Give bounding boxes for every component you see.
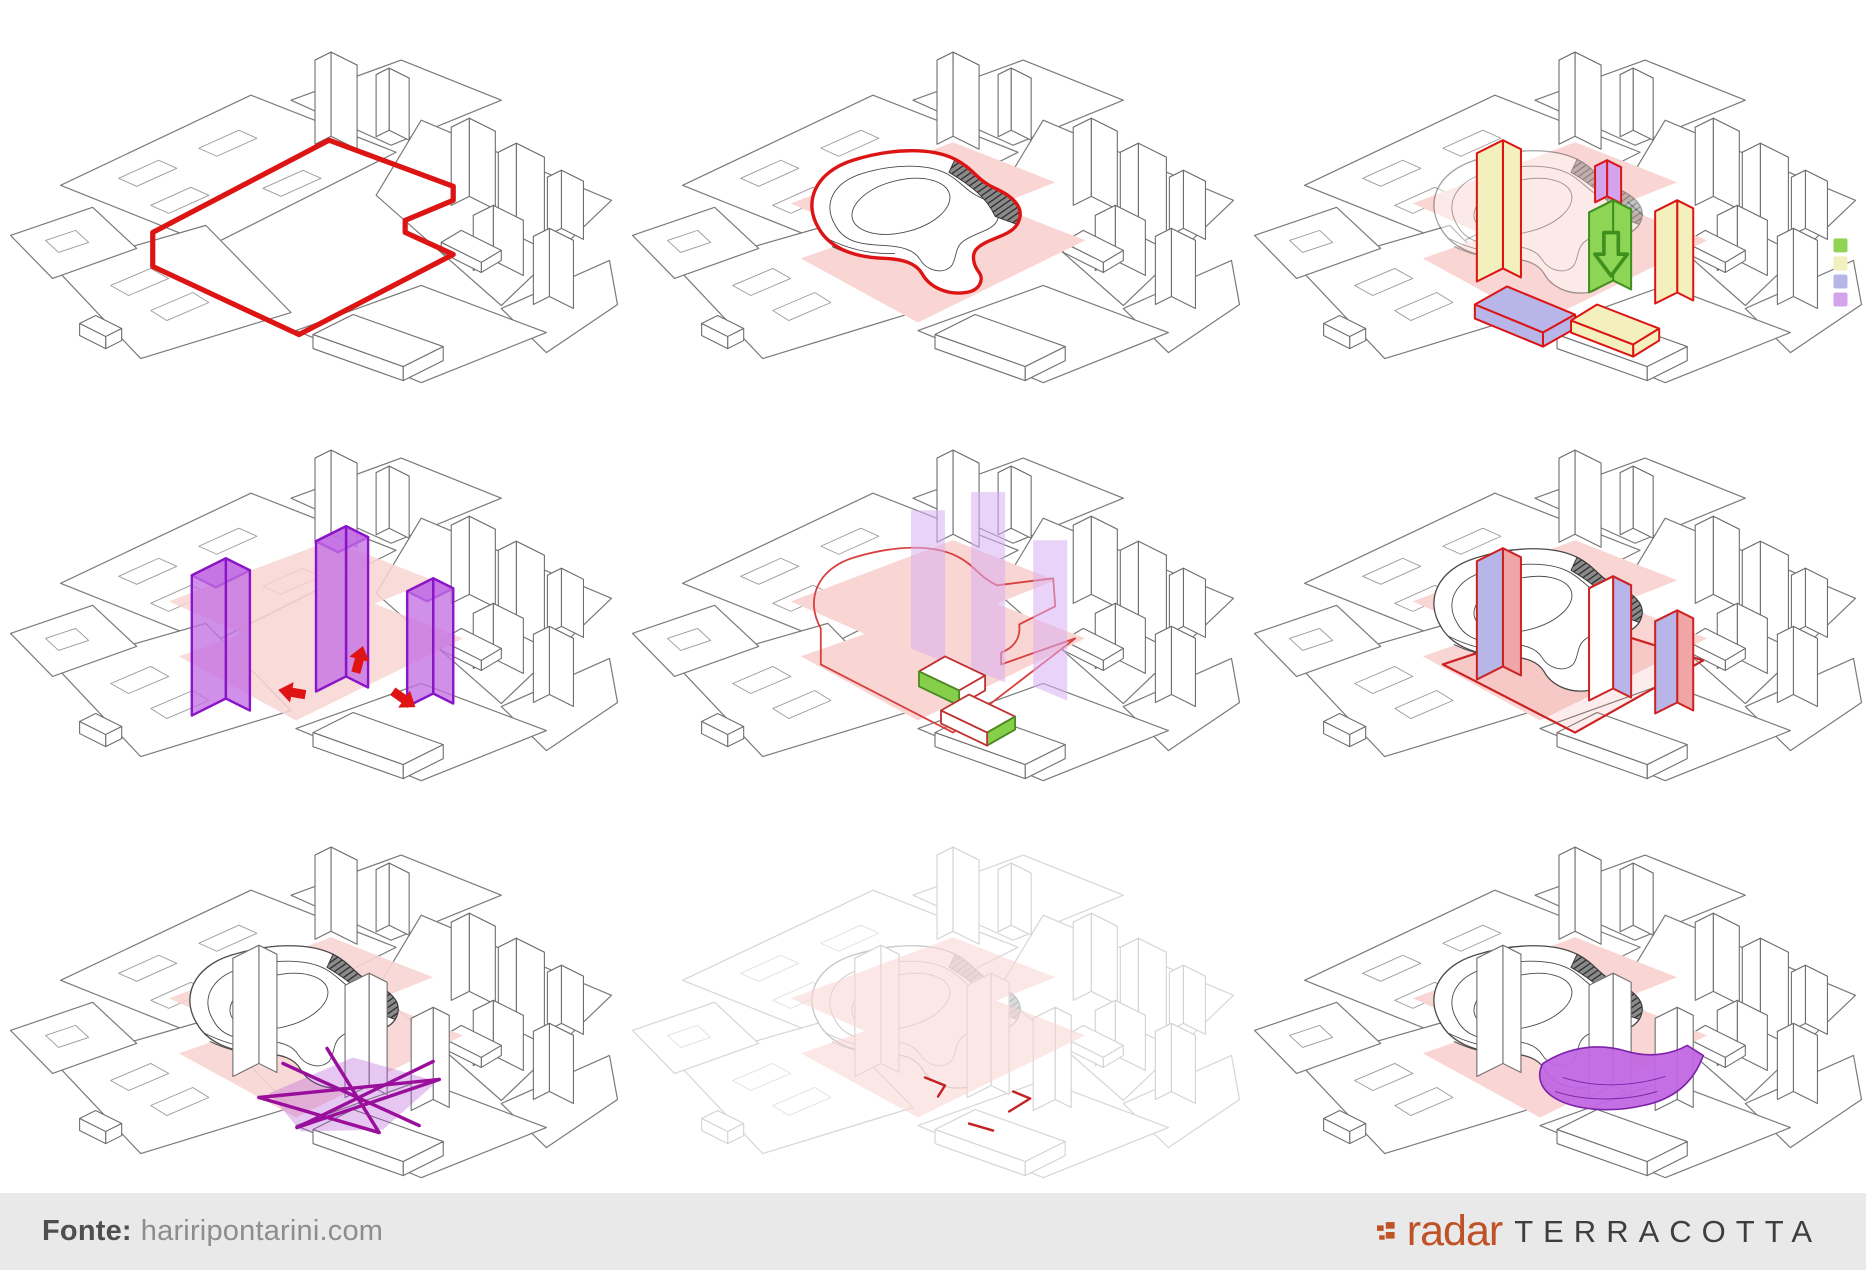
legend-swatch-lilac <box>1833 292 1847 306</box>
radar-logo-icon <box>1377 1221 1399 1243</box>
panel-step-8-ground-connections <box>622 795 1244 1193</box>
lilac-cap <box>1595 160 1621 203</box>
source-link: hariripontarini.com <box>141 1215 383 1247</box>
brand-terracotta-text: TERRACOTTA <box>1514 1216 1822 1247</box>
panel-step-6-sculpted-towers <box>1244 398 1866 796</box>
panel-step-3-program-massing <box>1244 0 1866 398</box>
city-wireframe <box>11 52 618 383</box>
yellow-tower-right <box>1655 200 1693 303</box>
source-credit: Fonte:hariripontarini.com <box>42 1215 383 1248</box>
panel-step-1-site-boundary <box>0 0 622 398</box>
brand-logo: radar TERRACOTTA <box>1377 1210 1822 1253</box>
source-label: Fonte: <box>42 1215 132 1247</box>
panel-step-2-existing-building <box>622 0 1244 398</box>
panel-step-9-podium-landscape <box>1244 795 1866 1193</box>
footer: Fonte:hariripontarini.com radar TERRACOT… <box>0 1193 1866 1270</box>
legend-swatch-green <box>1833 238 1847 252</box>
panel-step-5-footprint-carve <box>622 398 1244 796</box>
green-tower <box>1589 200 1631 292</box>
brand-radar-text: radar <box>1407 1210 1502 1253</box>
panel-step-4-tower-placement <box>0 398 622 796</box>
legend-swatch-yellow <box>1833 256 1847 270</box>
diagram-grid <box>0 0 1866 1193</box>
legend-swatch-periwinkle <box>1833 274 1847 288</box>
yellow-tower-left <box>1477 140 1521 281</box>
panel-step-7-structure-diagram <box>0 795 622 1193</box>
